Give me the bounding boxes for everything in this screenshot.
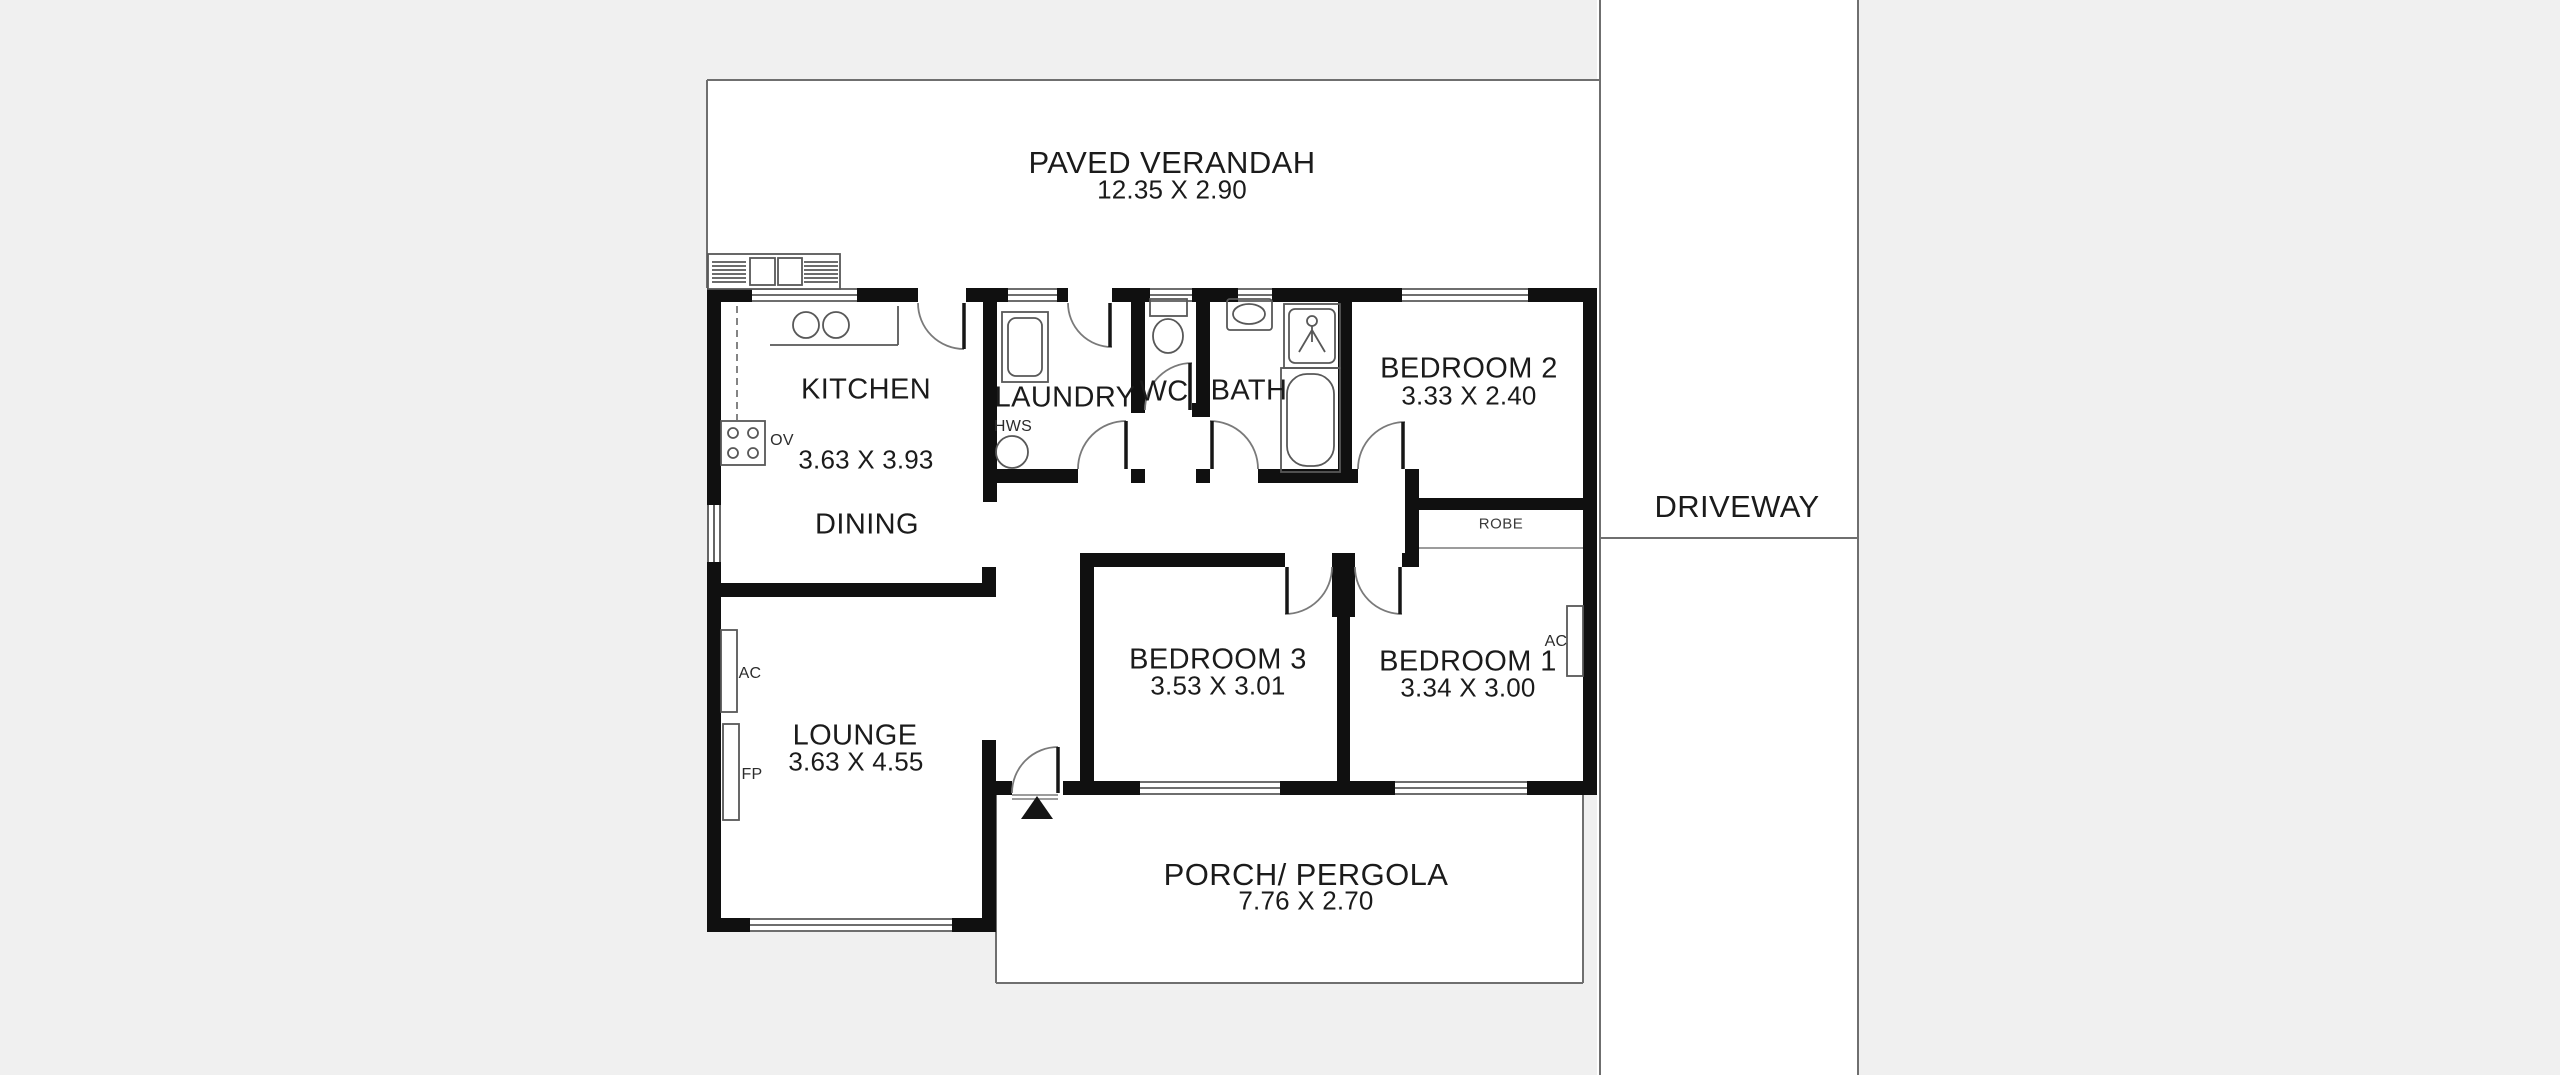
porch-area [996,781,1583,983]
house-area-lounge [707,288,996,932]
fireplace-icon [723,724,739,820]
bbq-bench-icon [708,254,840,289]
ac-unit-bedroom1-icon [1567,606,1583,676]
floor-plan-drawing [0,0,2560,1075]
floor-plan-page: PAVED VERANDAH 12.35 X 2.90 KITCHEN 3.63… [0,0,2560,1075]
ac-unit-lounge-icon [721,630,737,712]
verandah-area [707,80,1600,288]
